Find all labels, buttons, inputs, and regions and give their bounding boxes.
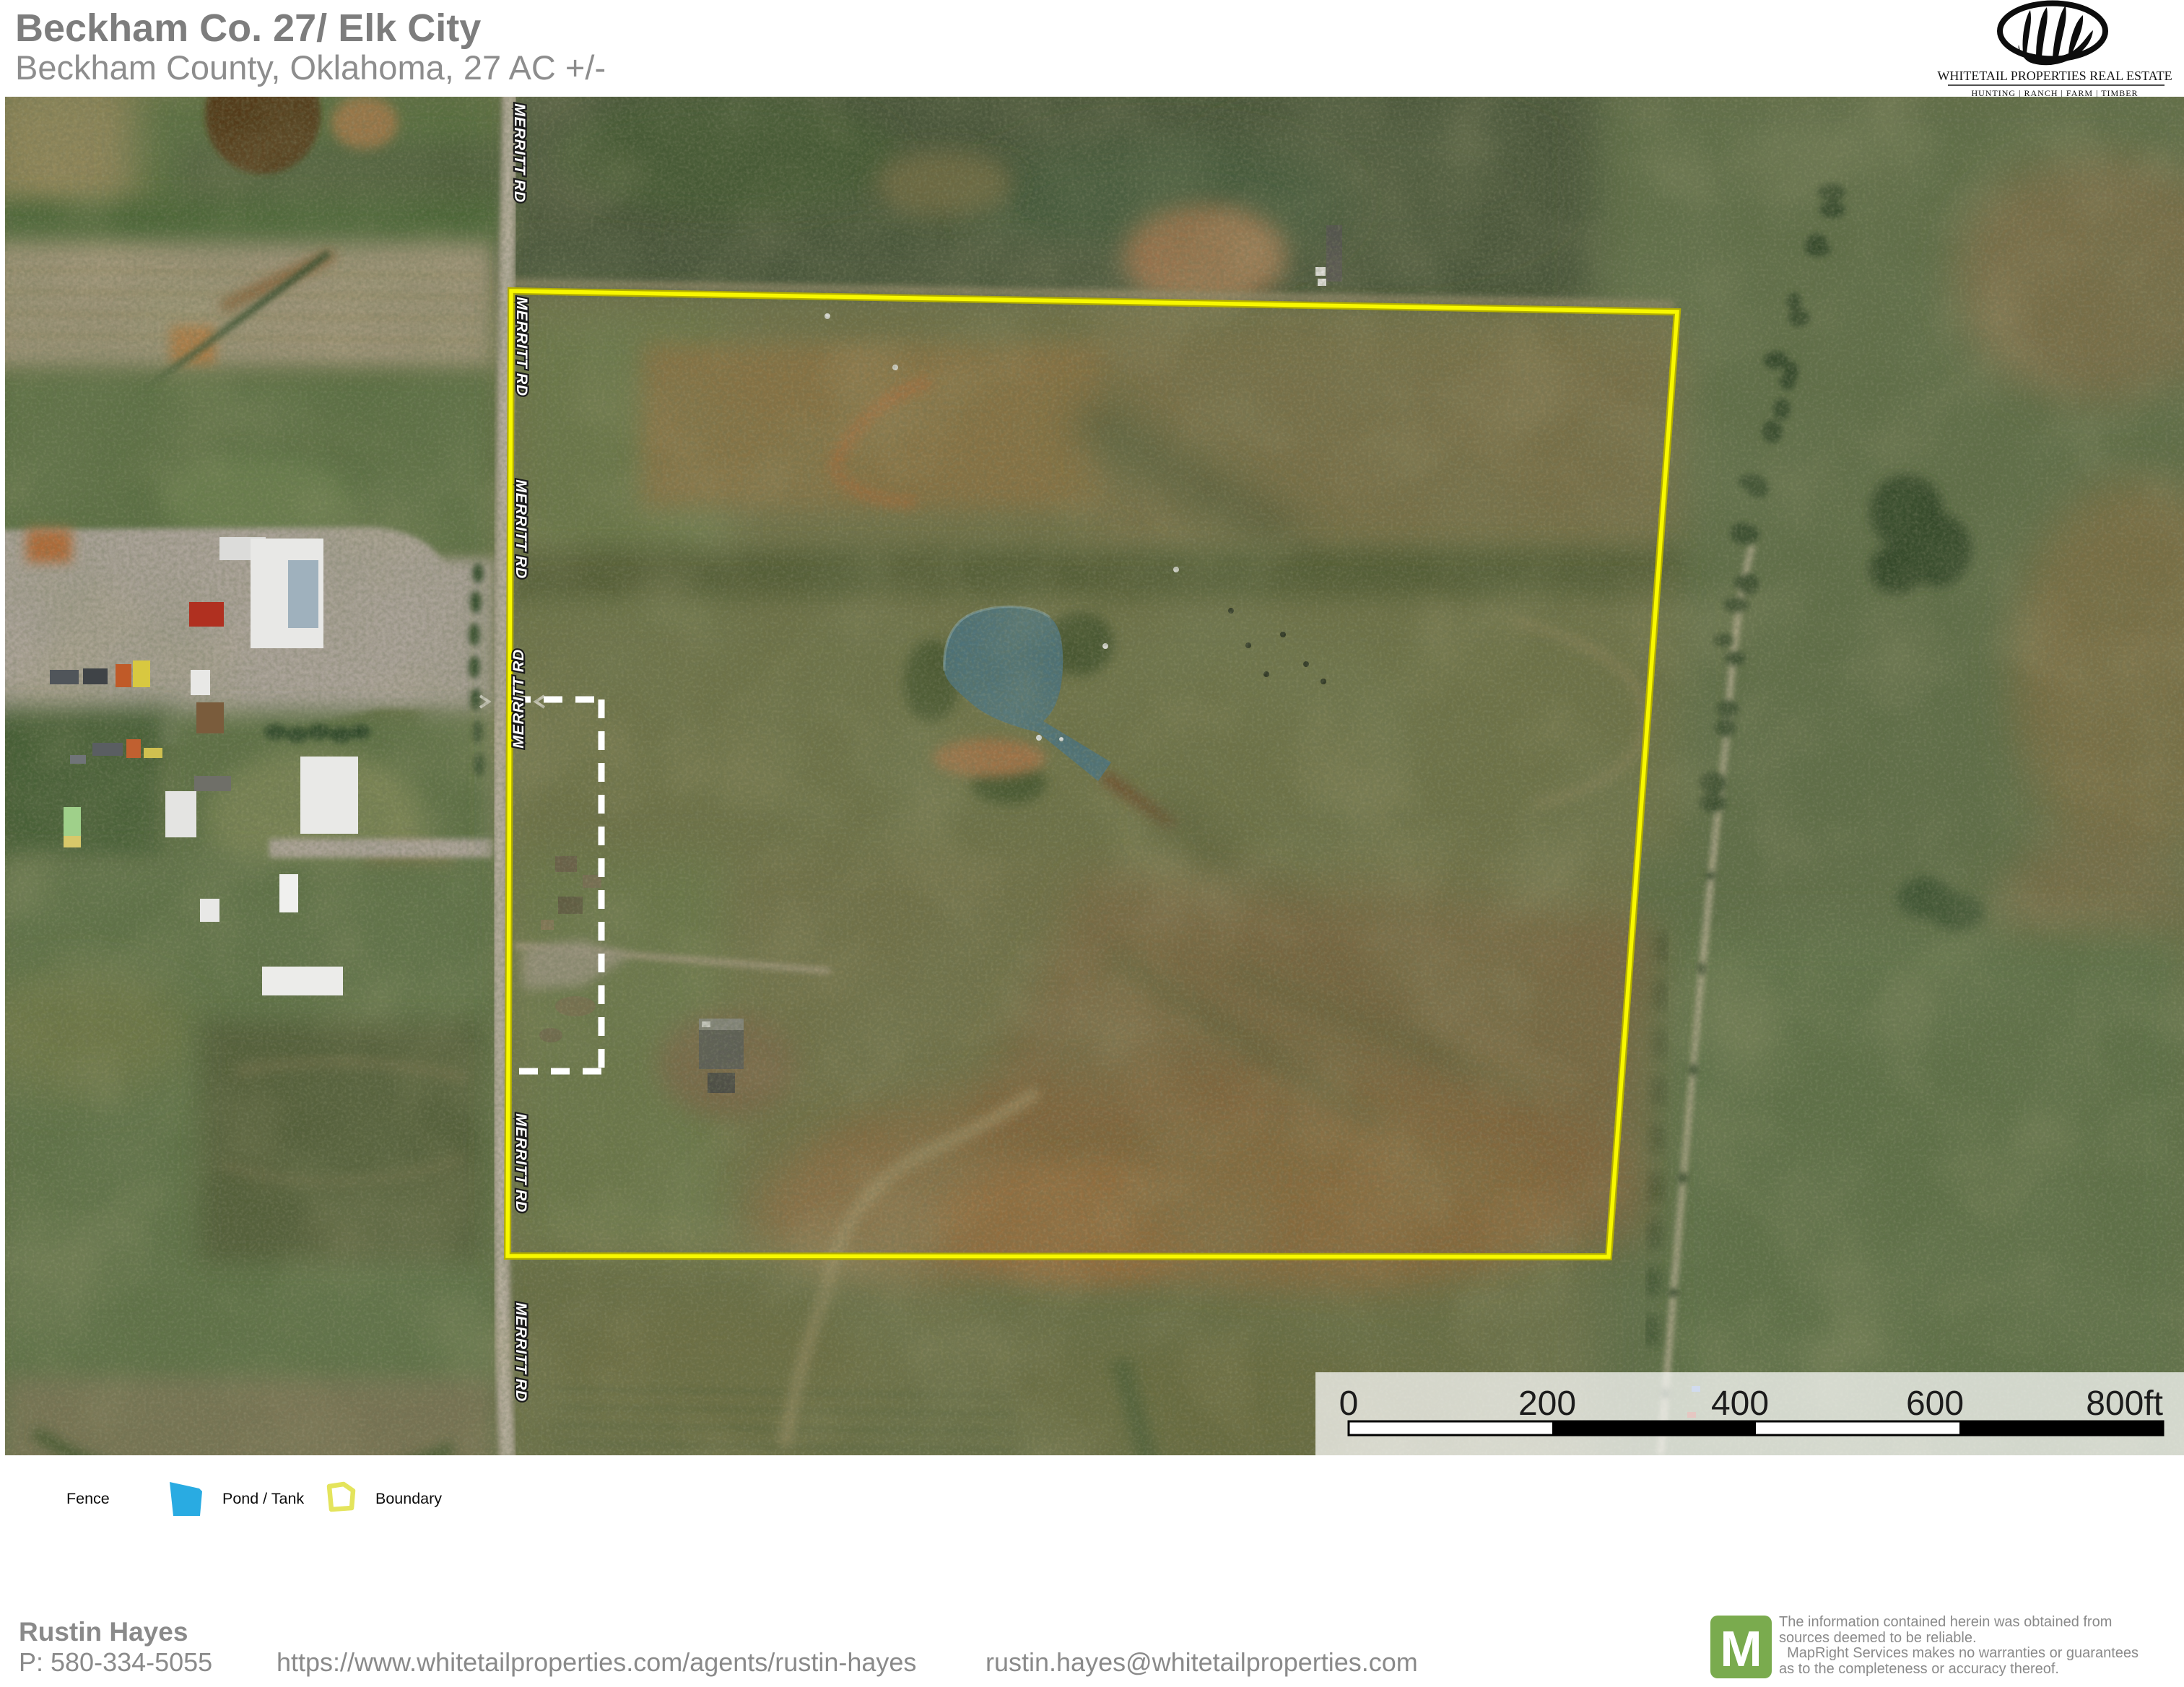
svg-text:MERRITT RD: MERRITT RD [513,297,531,396]
svg-text:MERRITT RD: MERRITT RD [513,1113,530,1213]
svg-text:WHITETAIL PROPERTIES REAL ESTA: WHITETAIL PROPERTIES REAL ESTATE [1937,69,2172,83]
svg-text:600: 600 [1906,1385,1964,1423]
svg-text:Boundary: Boundary [375,1490,442,1507]
svg-text:Pond / Tank: Pond / Tank [222,1490,304,1507]
svg-text:400: 400 [1711,1385,1769,1423]
svg-text:MERRITT RD: MERRITT RD [511,103,528,203]
svg-text:Fence: Fence [66,1490,110,1507]
svg-text:800ft: 800ft [2086,1385,2163,1423]
svg-text:200: 200 [1518,1385,1576,1423]
svg-text:MERRITT RD: MERRITT RD [513,479,530,579]
svg-text:MERRITT RD: MERRITT RD [513,1302,530,1402]
svg-text:MERRITT RD: MERRITT RD [510,649,527,749]
svg-text:0: 0 [1339,1385,1359,1423]
